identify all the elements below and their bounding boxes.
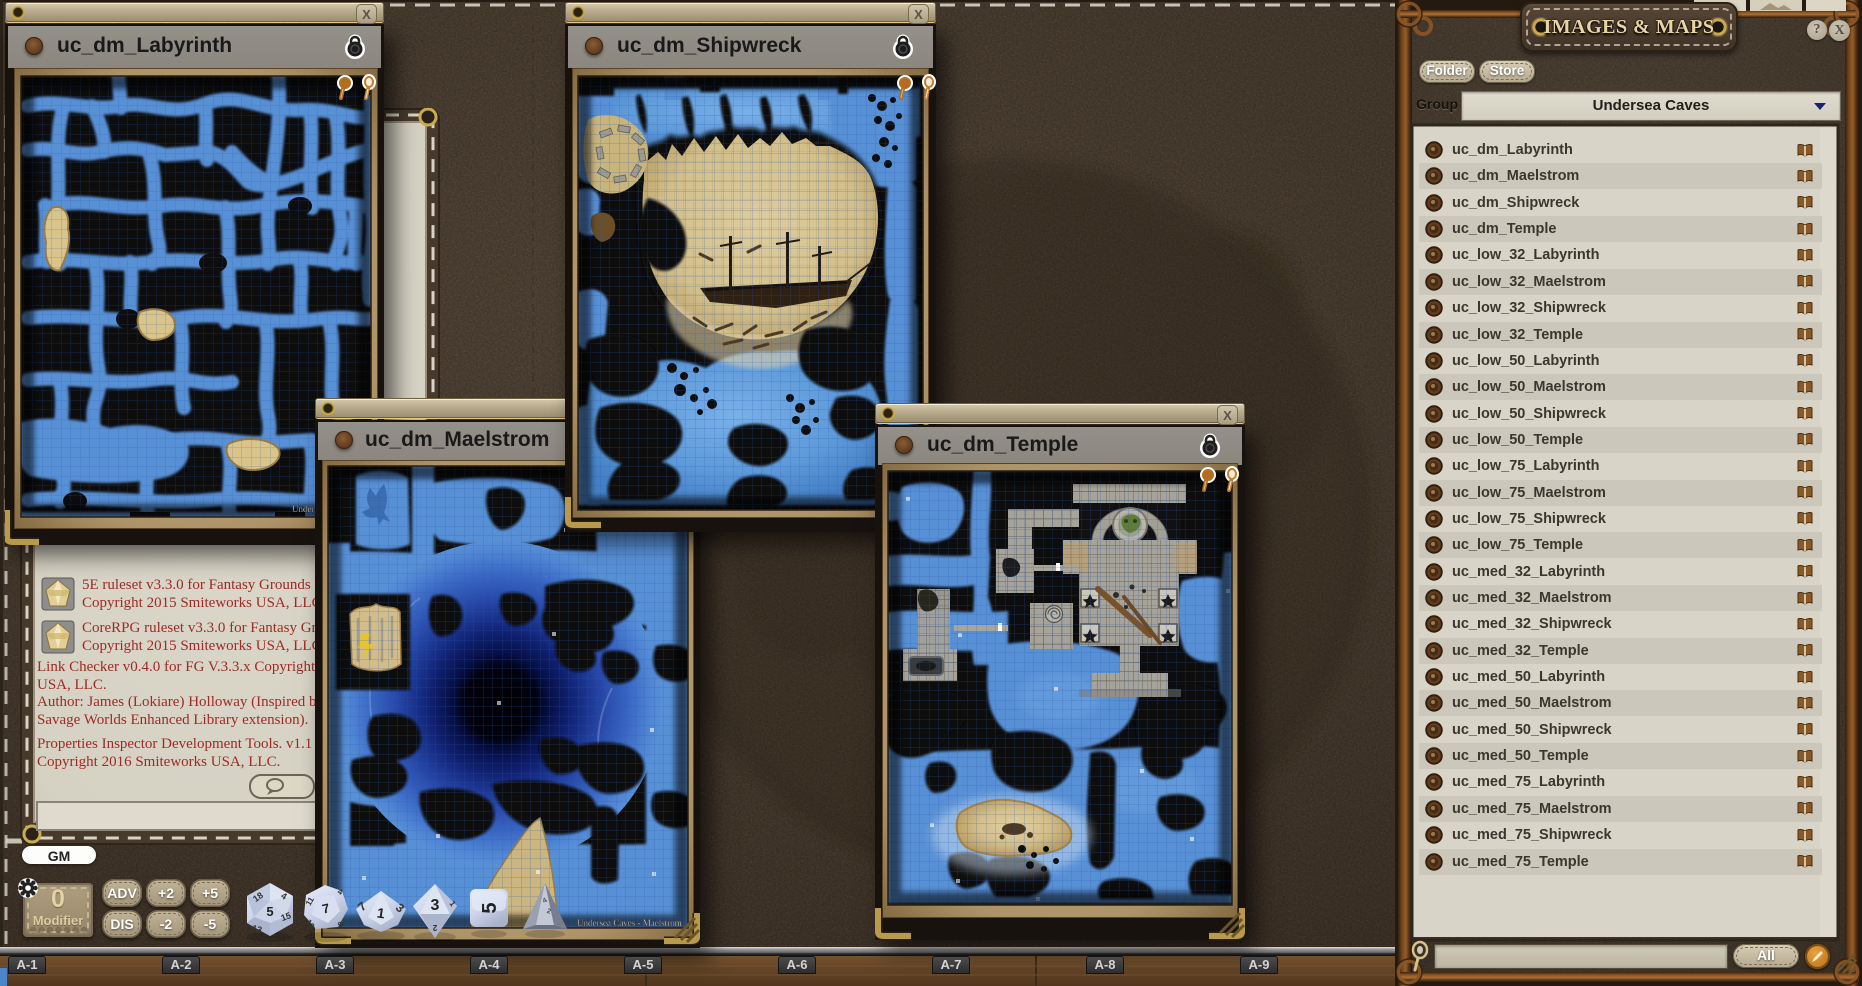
- svg-text:5: 5: [479, 902, 501, 913]
- svg-text:2: 2: [432, 923, 437, 932]
- svg-text:5: 5: [266, 904, 273, 919]
- svg-text:3: 3: [431, 897, 440, 914]
